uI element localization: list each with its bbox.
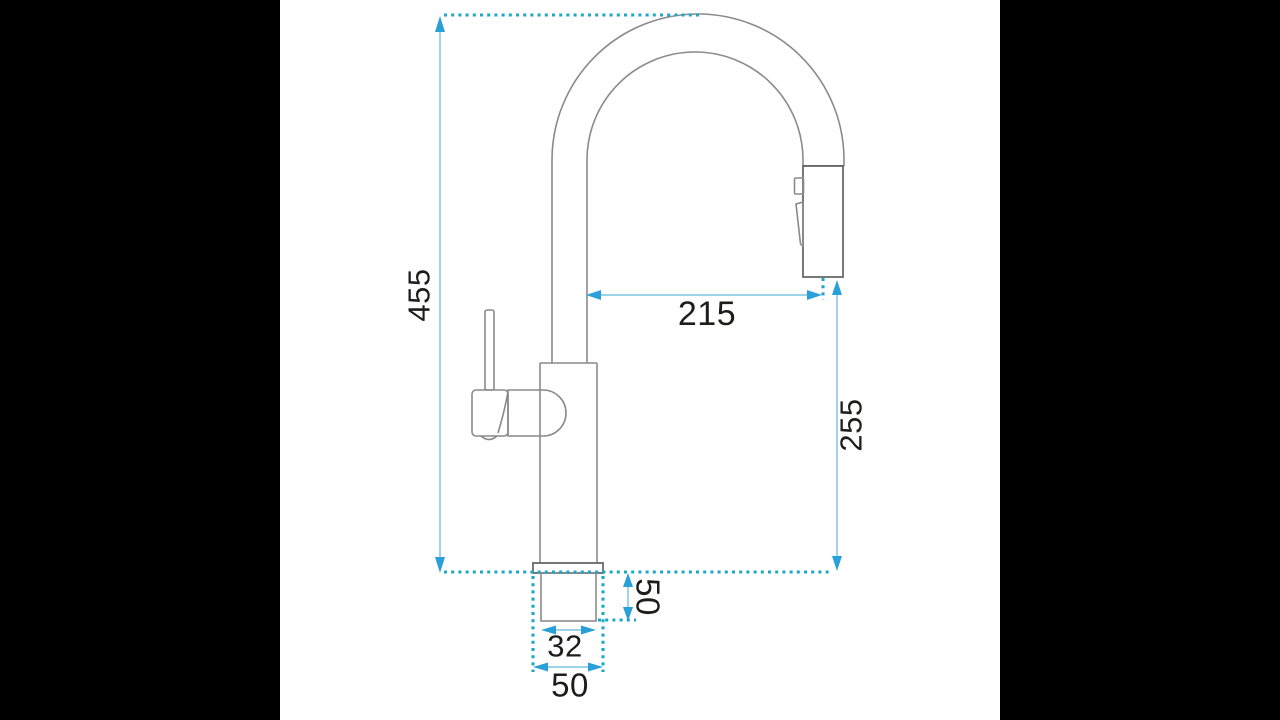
screenshot-viewport: 455 215 255 50 32 50 — [0, 0, 1280, 720]
arrow-up-icon — [435, 16, 445, 32]
dimension-label-spout-reach: 215 — [678, 297, 736, 331]
dimension-label-overall-height: 455 — [404, 268, 435, 321]
threaded-shank — [541, 573, 596, 621]
arrow-down-icon — [832, 556, 842, 571]
faucet-outline — [472, 14, 844, 621]
letterbox-bar-right — [1000, 0, 1280, 720]
spray-head — [803, 166, 843, 277]
arrow-up-icon — [832, 280, 842, 295]
dimension-label-thread-diameter: 32 — [547, 631, 582, 662]
arrow-left-icon — [533, 663, 548, 672]
arrow-right-icon — [588, 663, 603, 672]
arrow-down-icon — [435, 557, 445, 573]
letterbox-bar-left — [0, 0, 280, 720]
dimension-label-base-diameter: 50 — [551, 669, 589, 702]
arrow-right-icon — [807, 290, 822, 300]
dimension-label-thread-length: 50 — [632, 578, 665, 616]
spray-head-trigger — [796, 202, 803, 246]
handle-cartridge-housing — [508, 390, 566, 436]
arrow-left-icon — [586, 290, 601, 300]
handle-lever-stick — [485, 310, 494, 390]
drawing-canvas: 455 215 255 50 32 50 — [280, 0, 1000, 720]
handle-base — [472, 390, 508, 436]
handle-lever-edge-line — [498, 392, 508, 433]
dimension-overall-height-455 — [435, 16, 445, 573]
dotted-guide-lines — [444, 15, 832, 672]
dimension-label-outlet-height: 255 — [836, 398, 867, 451]
arrow-right-icon — [581, 626, 596, 635]
